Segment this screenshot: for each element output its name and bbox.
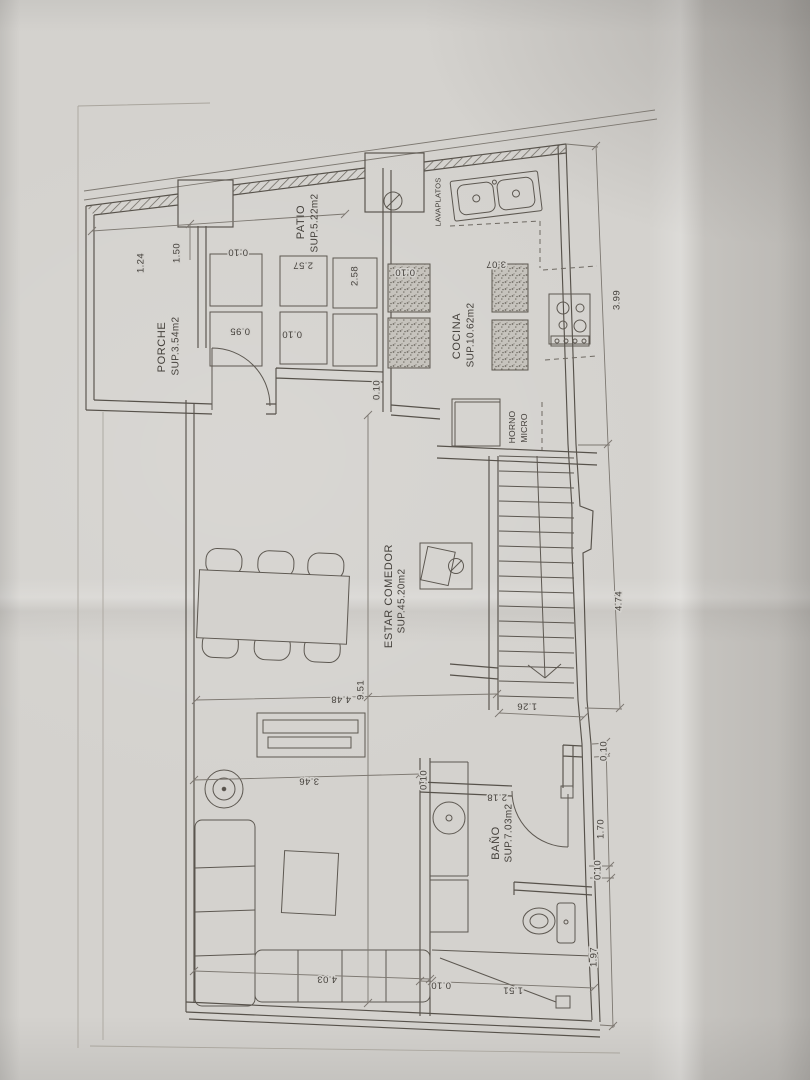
- dim-label: 4.74: [614, 591, 625, 611]
- room-area-cocina: SUP.10.62m2: [466, 303, 477, 368]
- dim-label: 0.10: [282, 329, 302, 340]
- dim-label: 3.07: [486, 259, 506, 270]
- label-micro: MICRO: [519, 413, 529, 443]
- dim-label: 0.95: [230, 326, 250, 337]
- room-label-patio: PATIO: [295, 205, 307, 239]
- floor-plan-svg: PORCHE SUP.3.54m2 PATIO SUP.5.22m2 COCIN…: [0, 0, 810, 1080]
- plot-boundary-lines: [84, 110, 657, 200]
- room-label-porche: PORCHE: [156, 322, 168, 373]
- dim-label: 4.03: [317, 974, 337, 985]
- dim-label: 0.10: [431, 980, 451, 991]
- sideboard: [257, 713, 365, 757]
- dim-label: 0.10: [419, 770, 430, 790]
- room-label-estar-comedor: ESTAR COMEDOR: [383, 544, 395, 648]
- drain-symbol: [384, 192, 402, 210]
- toilet: [523, 903, 575, 943]
- floor-plan-photo: PORCHE SUP.3.54m2 PATIO SUP.5.22m2 COCIN…: [0, 0, 810, 1080]
- room-area-patio: SUP.5.22m2: [310, 193, 321, 252]
- dim-label: 0.10: [593, 860, 604, 880]
- dim-label: 2.58: [350, 266, 361, 286]
- dim-label: 2.18: [487, 792, 507, 803]
- tv-unit: [420, 543, 472, 589]
- oven-micro: [452, 399, 500, 446]
- kitchen-sink: [450, 171, 542, 221]
- dim-label: 2.57: [293, 260, 313, 271]
- dim-label: 1.97: [589, 947, 600, 967]
- dim-label: 1.51: [503, 985, 523, 996]
- stairs: [499, 456, 574, 698]
- dim-label: 1.50: [172, 243, 183, 263]
- dim-label: 0.10: [599, 741, 610, 761]
- room-label-cocina: COCINA: [451, 313, 463, 359]
- dim-label: 0.10: [395, 267, 415, 278]
- top-wall-hatch: [86, 144, 566, 215]
- shower-area: [432, 950, 592, 1008]
- dim-label: 3.46: [299, 776, 319, 787]
- washbasin: [430, 762, 468, 932]
- dining-table-set: [196, 548, 351, 663]
- dim-label: 9.51: [356, 680, 367, 700]
- round-side-table: [205, 770, 243, 808]
- bathroom-door-arc: [512, 786, 573, 847]
- label-lavaplatos: LAVAPLATOS: [434, 178, 443, 227]
- dim-label: 0.10: [228, 247, 248, 258]
- room-label-bano: BAÑO: [489, 826, 502, 860]
- coffee-table: [281, 851, 338, 916]
- dining-table: [197, 570, 350, 644]
- room-area-bano: SUP.7.03m2: [504, 803, 515, 862]
- stove: [549, 294, 590, 346]
- room-area-estar-comedor: SUP.45.20m2: [397, 569, 408, 634]
- dim-label: 1.26: [517, 701, 537, 712]
- dim-label: 1.24: [136, 253, 147, 273]
- dim-label: 4.48: [331, 694, 351, 705]
- label-horno: HORNO: [507, 410, 517, 443]
- dim-label: 1.70: [596, 819, 607, 839]
- porch-door-arc: [212, 348, 270, 410]
- dim-label: 3.99: [612, 290, 623, 310]
- room-area-porche: SUP.3.54m2: [171, 316, 182, 375]
- dim-label: 0.10: [372, 380, 383, 400]
